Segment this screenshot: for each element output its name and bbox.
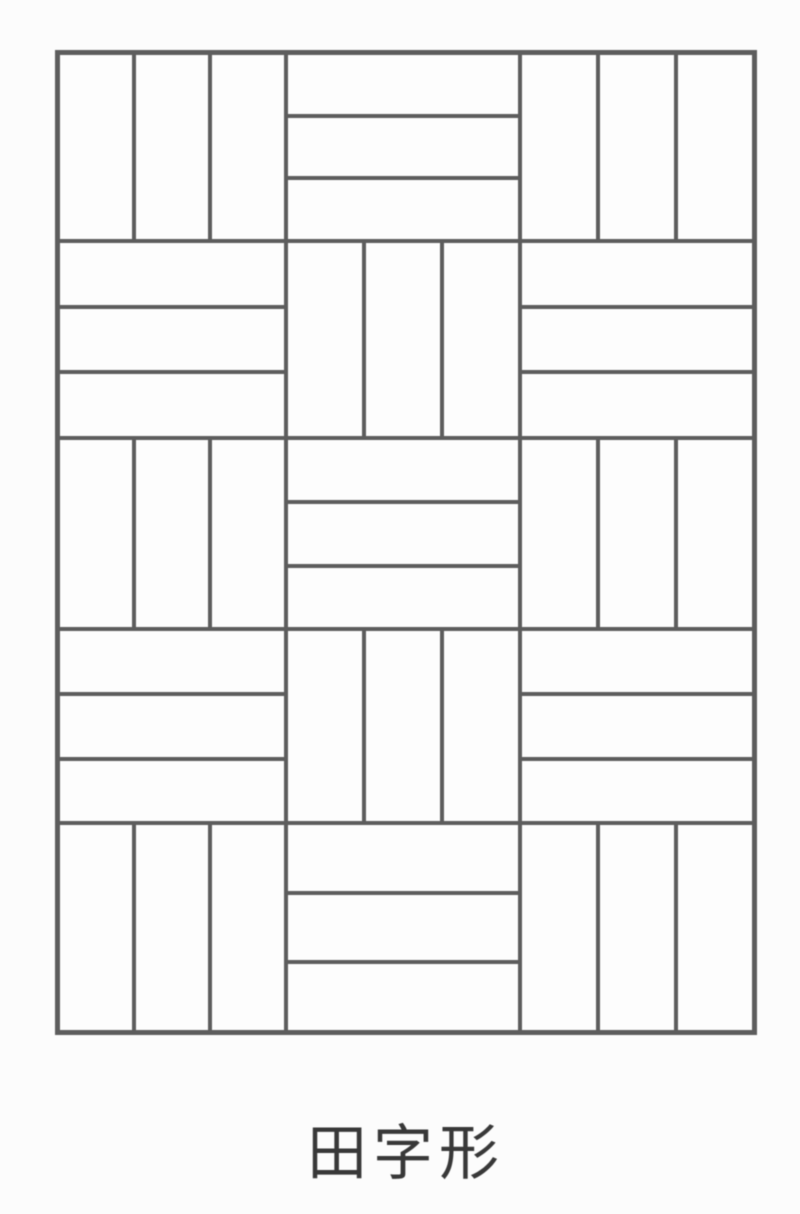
- plank: [366, 243, 444, 436]
- tile-cell-r4-c3-horizontal-planks: [522, 631, 752, 825]
- plank: [522, 243, 752, 309]
- plank: [288, 55, 518, 118]
- tile-cell-r5-c1-vertical-planks: [60, 825, 288, 1030]
- tile-cell-r5-c3-vertical-planks: [522, 825, 752, 1030]
- plank: [678, 825, 752, 1030]
- plank: [60, 374, 284, 436]
- tile-cell-r4-c2-vertical-planks: [288, 631, 522, 825]
- plank: [522, 55, 600, 239]
- plank: [288, 440, 518, 504]
- tile-cell-r5-c2-horizontal-planks: [288, 825, 522, 1030]
- plank: [288, 568, 518, 628]
- plank: [444, 243, 518, 436]
- tile-cell-r1-c1-vertical-planks: [60, 55, 288, 243]
- plank: [288, 118, 518, 181]
- plank: [288, 631, 366, 821]
- plank: [60, 309, 284, 375]
- plank: [522, 374, 752, 436]
- plank: [444, 631, 518, 821]
- tile-cell-r2-c3-horizontal-planks: [522, 243, 752, 440]
- tile-cell-r3-c2-horizontal-planks: [288, 440, 522, 631]
- plank: [678, 55, 752, 239]
- plank: [522, 696, 752, 761]
- figure-caption: 田字形: [307, 1118, 505, 1190]
- tile-cell-r4-c1-horizontal-planks: [60, 631, 288, 825]
- plank: [288, 964, 518, 1030]
- plank: [366, 631, 444, 821]
- plank: [522, 440, 600, 627]
- plank: [60, 243, 284, 309]
- plank: [136, 440, 212, 627]
- plank: [212, 55, 284, 239]
- tile-cell-r1-c3-vertical-planks: [522, 55, 752, 243]
- plank: [212, 825, 284, 1030]
- plank: [288, 243, 366, 436]
- parquet-pattern-diagram: [55, 50, 757, 1035]
- tile-cell-r1-c2-horizontal-planks: [288, 55, 522, 243]
- tile-cell-r2-c1-horizontal-planks: [60, 243, 288, 440]
- plank: [136, 55, 212, 239]
- plank: [600, 825, 678, 1030]
- plank: [522, 761, 752, 822]
- plank: [60, 440, 136, 627]
- plank: [288, 180, 518, 239]
- plank: [60, 825, 136, 1030]
- plank: [288, 825, 518, 895]
- page: 田字形: [0, 0, 800, 1214]
- plank: [288, 895, 518, 965]
- plank: [212, 440, 284, 627]
- plank: [600, 55, 678, 239]
- tile-cell-r3-c1-vertical-planks: [60, 440, 288, 631]
- tile-cell-r3-c3-vertical-planks: [522, 440, 752, 631]
- plank: [288, 504, 518, 568]
- tile-cell-r2-c2-vertical-planks: [288, 243, 522, 440]
- plank: [522, 309, 752, 375]
- plank: [522, 825, 600, 1030]
- plank: [678, 440, 752, 627]
- caption-row: 田字形: [55, 1118, 757, 1190]
- plank: [136, 825, 212, 1030]
- plank: [600, 440, 678, 627]
- plank: [60, 55, 136, 239]
- plank: [522, 631, 752, 696]
- plank: [60, 631, 284, 696]
- plank: [60, 696, 284, 761]
- plank: [60, 761, 284, 822]
